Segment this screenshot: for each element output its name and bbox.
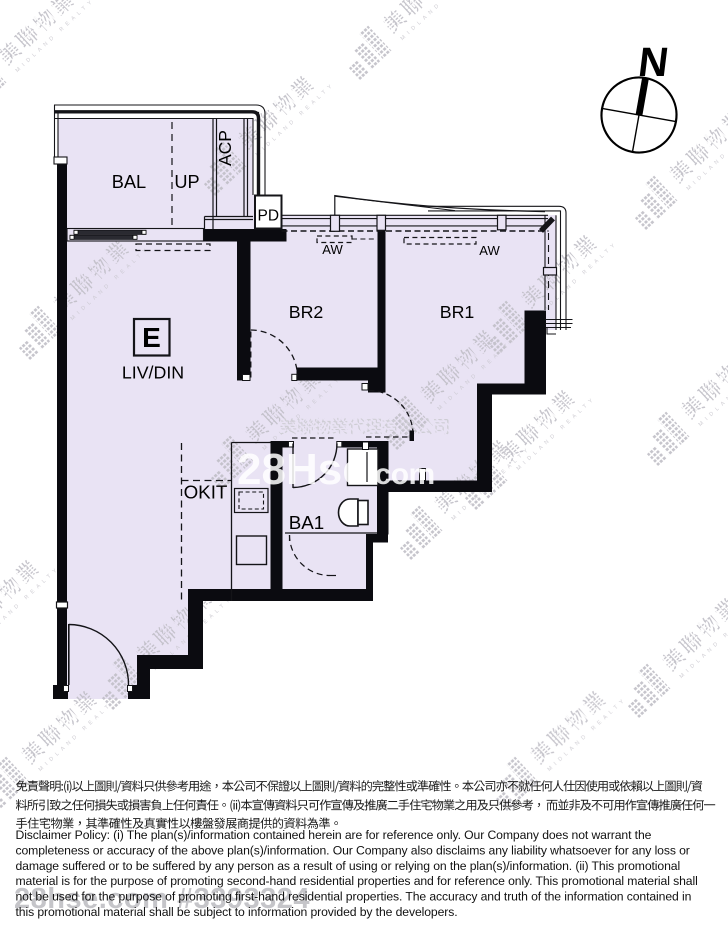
svg-text:BA1: BA1 [289, 512, 325, 533]
svg-text:Disclaimer Policy: (i) The pla: Disclaimer Policy: (i) The plan(s)/infor… [16, 828, 652, 842]
svg-text:AW: AW [322, 242, 343, 257]
svg-text:ACP: ACP [215, 130, 235, 166]
svg-text:BR2: BR2 [289, 302, 324, 322]
svg-text:OKIT: OKIT [184, 482, 228, 503]
svg-text:this promotional material shal: this promotional material shall be subje… [16, 905, 458, 919]
svg-text:completeness or accuracy of th: completeness or accuracy of the above pl… [16, 843, 690, 857]
svg-text:not be used for the purpose of: not be used for the purpose of promoting… [16, 890, 692, 904]
svg-text:BR1: BR1 [440, 302, 475, 322]
svg-text:UP: UP [174, 172, 199, 192]
svg-text:LIV/DIN: LIV/DIN [122, 363, 184, 383]
svg-text:material is for the purpose of: material is for the purpose of promoting… [16, 874, 698, 888]
svg-text:N: N [636, 39, 671, 85]
svg-text:PD: PD [258, 208, 280, 225]
svg-text:E: E [142, 322, 161, 353]
svg-text:damage suffered or to be suffe: damage suffered or to be suffered by any… [16, 859, 681, 873]
svg-text:BAL: BAL [112, 172, 146, 192]
svg-text:AW: AW [479, 243, 500, 258]
